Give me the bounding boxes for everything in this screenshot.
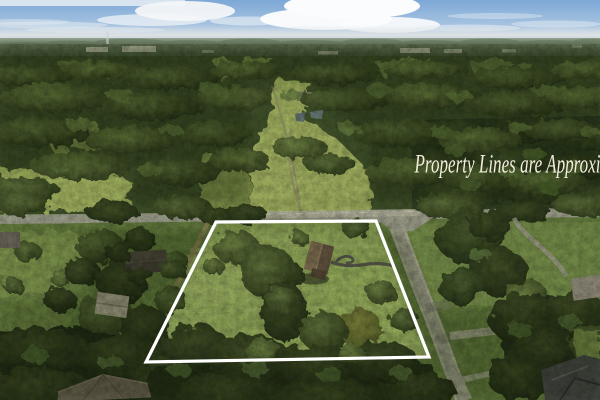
svg-text:Property Lines are Approximate: Property Lines are Approximate xyxy=(414,149,600,179)
